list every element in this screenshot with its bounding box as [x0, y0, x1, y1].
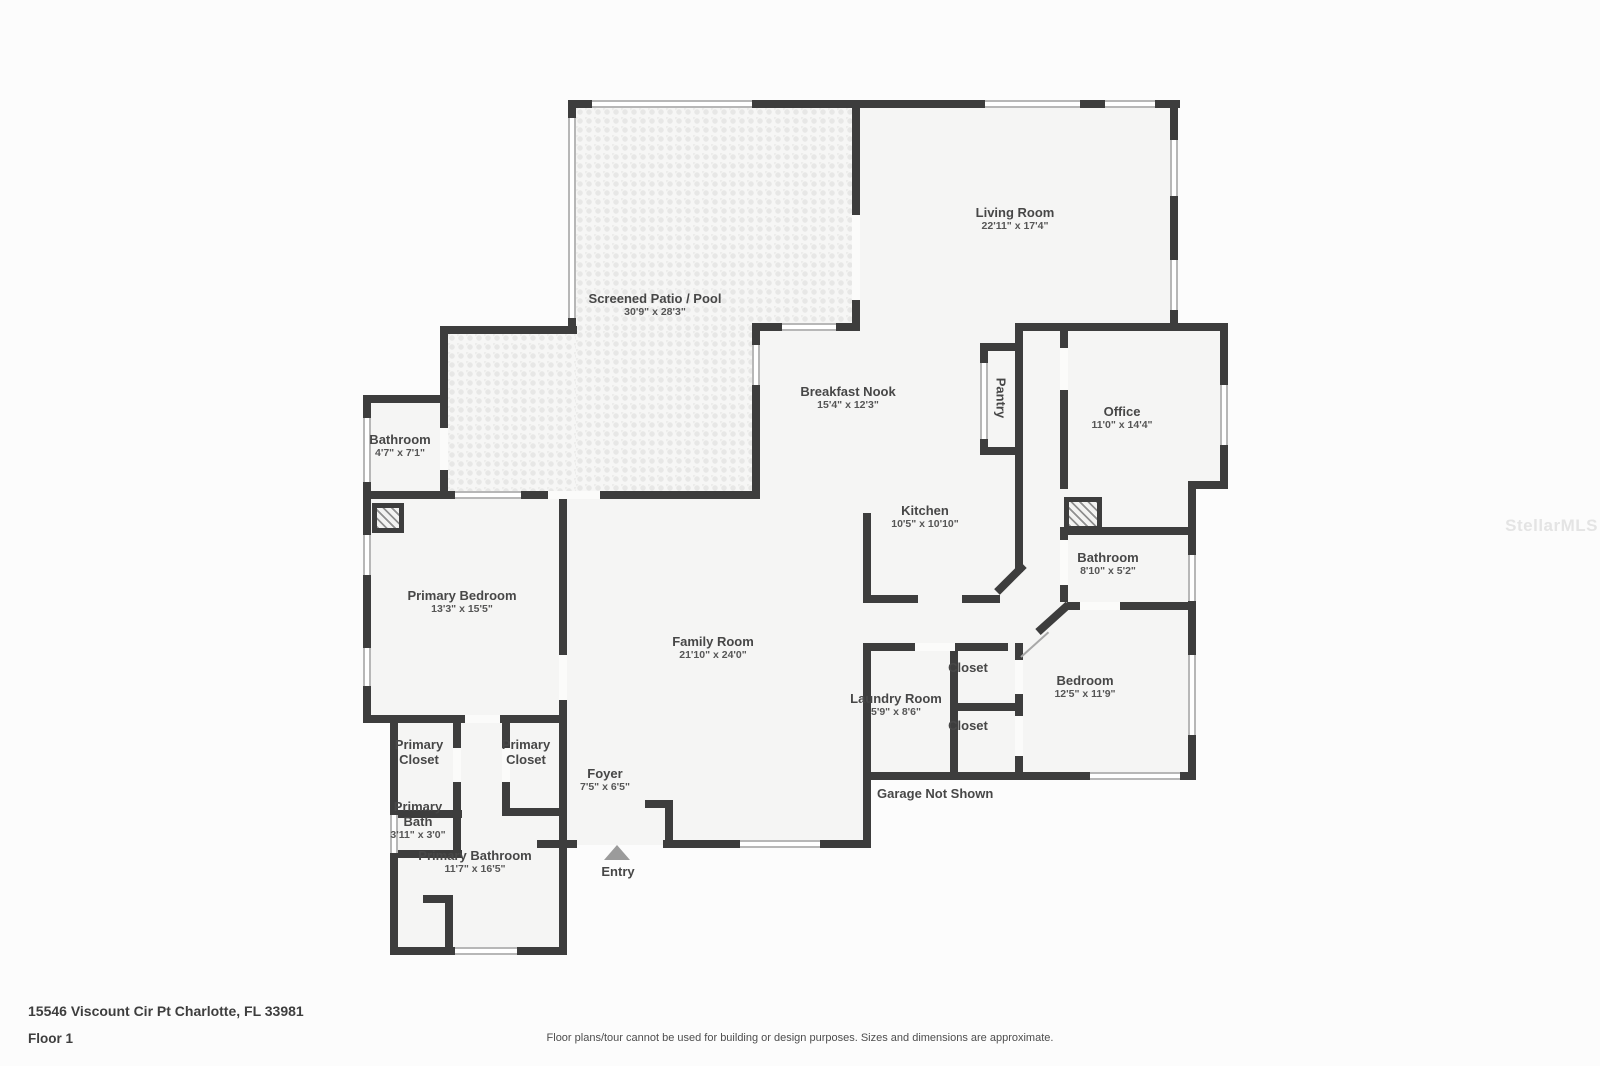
window — [980, 363, 988, 439]
floor-plan-page: Living Room 22'11" x 17'4" Screened Pati… — [0, 0, 1600, 1066]
stellar-mls-watermark: StellarMLS — [1505, 516, 1598, 536]
door-opening — [559, 655, 567, 700]
window — [740, 840, 820, 848]
property-address: 15546 Viscount Cir Pt Charlotte, FL 3398… — [28, 1003, 304, 1019]
patio-floor — [576, 331, 752, 491]
room-label-breakfast-nook: Breakfast Nook 15'4" x 12'3" — [800, 384, 895, 412]
floor-plan: Living Room 22'11" x 17'4" Screened Pati… — [0, 0, 1600, 1066]
wall-segment — [537, 840, 577, 848]
door-opening — [465, 715, 500, 723]
patio-floor — [448, 334, 576, 491]
door-opening — [915, 643, 955, 651]
window — [363, 535, 371, 575]
window — [1220, 385, 1228, 445]
wall-segment — [363, 395, 448, 403]
hatched-fixture — [1064, 497, 1102, 531]
wall-segment — [863, 513, 871, 603]
wall-segment — [950, 703, 1023, 711]
wall-segment — [440, 326, 577, 334]
wall-segment — [1015, 331, 1023, 572]
wall-segment — [863, 595, 918, 603]
door-opening — [1015, 660, 1023, 694]
window — [1188, 555, 1196, 601]
window — [985, 100, 1080, 108]
window — [1105, 100, 1155, 108]
wall-segment — [645, 800, 673, 808]
window — [592, 100, 752, 108]
disclaimer-text: Floor plans/tour cannot be used for buil… — [0, 1032, 1600, 1044]
room-label-bathroom-left: Bathroom 4'7" x 7'1" — [369, 432, 430, 460]
wall-segment — [863, 780, 871, 848]
room-label-pantry: Pantry — [994, 378, 1009, 418]
window — [1090, 772, 1180, 780]
wall-segment — [962, 595, 1000, 603]
door-opening — [1060, 348, 1068, 390]
entry-label: Entry — [601, 864, 634, 879]
window — [455, 491, 521, 499]
wall-segment — [1188, 481, 1228, 489]
room-label-primary-bath: Primary Bath 3'11" x 3'0" — [380, 799, 456, 842]
room-label-closet-bottom: Closet — [948, 718, 988, 733]
room-label-laundry-room: Laundry Room 5'9" x 8'6" — [850, 691, 942, 719]
window — [1188, 655, 1196, 735]
door-opening — [440, 428, 448, 470]
room-label-kitchen: Kitchen 10'5" x 10'10" — [891, 503, 959, 531]
room-label-primary-closet-right: Primary Closet — [488, 737, 564, 767]
wall-segment — [502, 808, 567, 816]
room-label-screened-patio: Screened Patio / Pool 30'9" x 28'3" — [589, 291, 722, 319]
room-label-bathroom-right: Bathroom 8'10" x 5'2" — [1077, 550, 1138, 578]
wall-segment — [1015, 323, 1228, 331]
room-label-primary-bathroom: Primary Bathroom 11'7" x 16'5" — [418, 848, 531, 876]
wall-segment — [445, 895, 453, 955]
room-label-office: Office 11'0" x 14'4" — [1091, 404, 1152, 432]
room-label-bedroom: Bedroom 12'5" x 11'9" — [1054, 673, 1115, 701]
garage-note: Garage Not Shown — [877, 786, 993, 801]
room-label-closet-top: Closet — [948, 660, 988, 675]
window — [363, 648, 371, 686]
door-opening — [852, 215, 860, 300]
door-opening — [1080, 602, 1120, 610]
room-label-living-room: Living Room 22'11" x 17'4" — [976, 205, 1055, 233]
window — [1170, 260, 1178, 310]
wall-segment — [1060, 527, 1196, 535]
room-label-family-room: Family Room 21'10" x 24'0" — [672, 634, 754, 662]
window — [752, 345, 760, 385]
room-label-primary-closet-left: Primary Closet — [381, 737, 457, 767]
room-label-foyer: Foyer 7'5" x 6'5" — [580, 766, 630, 794]
room-label-primary-bedroom: Primary Bedroom 13'3" x 15'5" — [407, 588, 516, 616]
window — [1170, 140, 1178, 196]
door-opening — [1015, 716, 1023, 756]
window — [568, 118, 576, 318]
hatched-fixture — [372, 503, 404, 533]
entry-arrow-icon — [604, 845, 630, 860]
door-opening — [1060, 540, 1068, 585]
wall-segment — [440, 334, 448, 399]
window — [782, 323, 836, 331]
door-opening — [548, 491, 600, 499]
window — [455, 947, 517, 955]
